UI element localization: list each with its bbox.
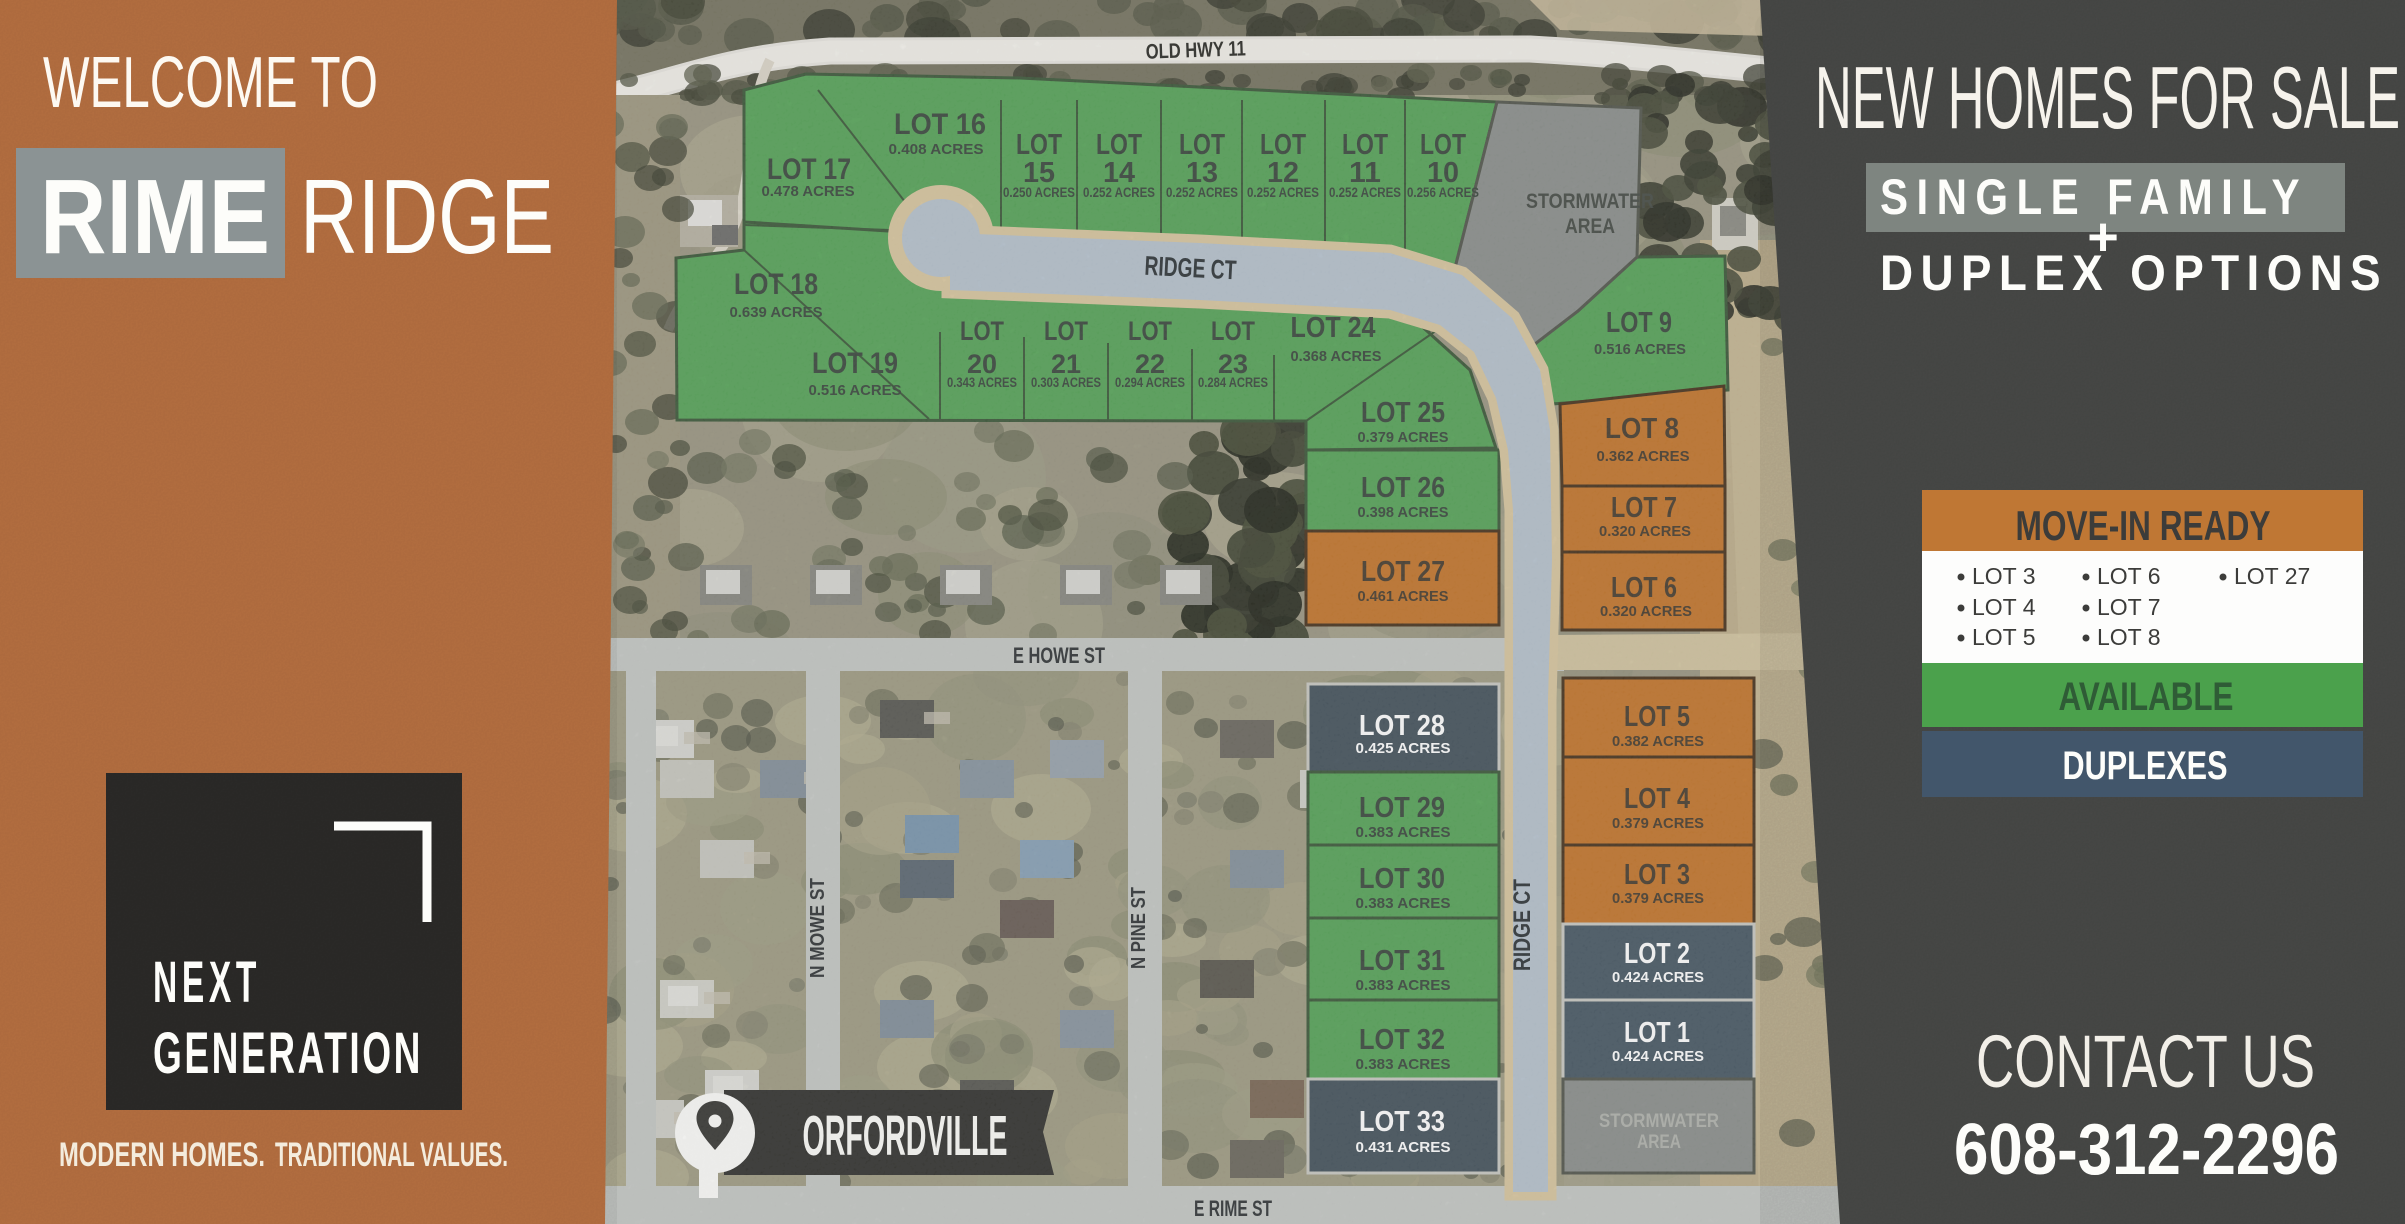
svg-text:LOT 5: LOT 5 [1972,624,2036,650]
svg-text:MODERN HOMES.: MODERN HOMES. [59,1136,265,1174]
svg-text:NEXT: NEXT [153,950,261,1015]
svg-text:LOT 6: LOT 6 [2097,563,2161,589]
svg-text:CONTACT US: CONTACT US [1976,1020,2315,1103]
svg-text:DUPLEXES: DUPLEXES [2063,744,2228,788]
svg-text:MOVE-IN READY: MOVE-IN READY [2016,502,2271,549]
svg-text:GENERATION: GENERATION [153,1021,423,1086]
svg-text:LOT 8: LOT 8 [2097,624,2161,650]
svg-text:608-312-2296: 608-312-2296 [1954,1110,2339,1190]
svg-text:NEW HOMES FOR SALE: NEW HOMES FOR SALE [1815,48,2400,147]
svg-text:RIDGE: RIDGE [300,158,554,276]
svg-text:DUPLEX OPTIONS: DUPLEX OPTIONS [1880,245,2388,301]
svg-text:AVAILABLE: AVAILABLE [2059,675,2234,719]
svg-text:LOT 3: LOT 3 [1972,563,2036,589]
svg-text:LOT 4: LOT 4 [1972,594,2036,620]
svg-text:TRADITIONAL VALUES.: TRADITIONAL VALUES. [275,1136,508,1174]
svg-text:LOT 7: LOT 7 [2097,594,2161,620]
svg-text:LOT 27: LOT 27 [2234,563,2310,589]
svg-text:RIME: RIME [40,158,270,276]
svg-text:WELCOME TO: WELCOME TO [43,43,378,123]
